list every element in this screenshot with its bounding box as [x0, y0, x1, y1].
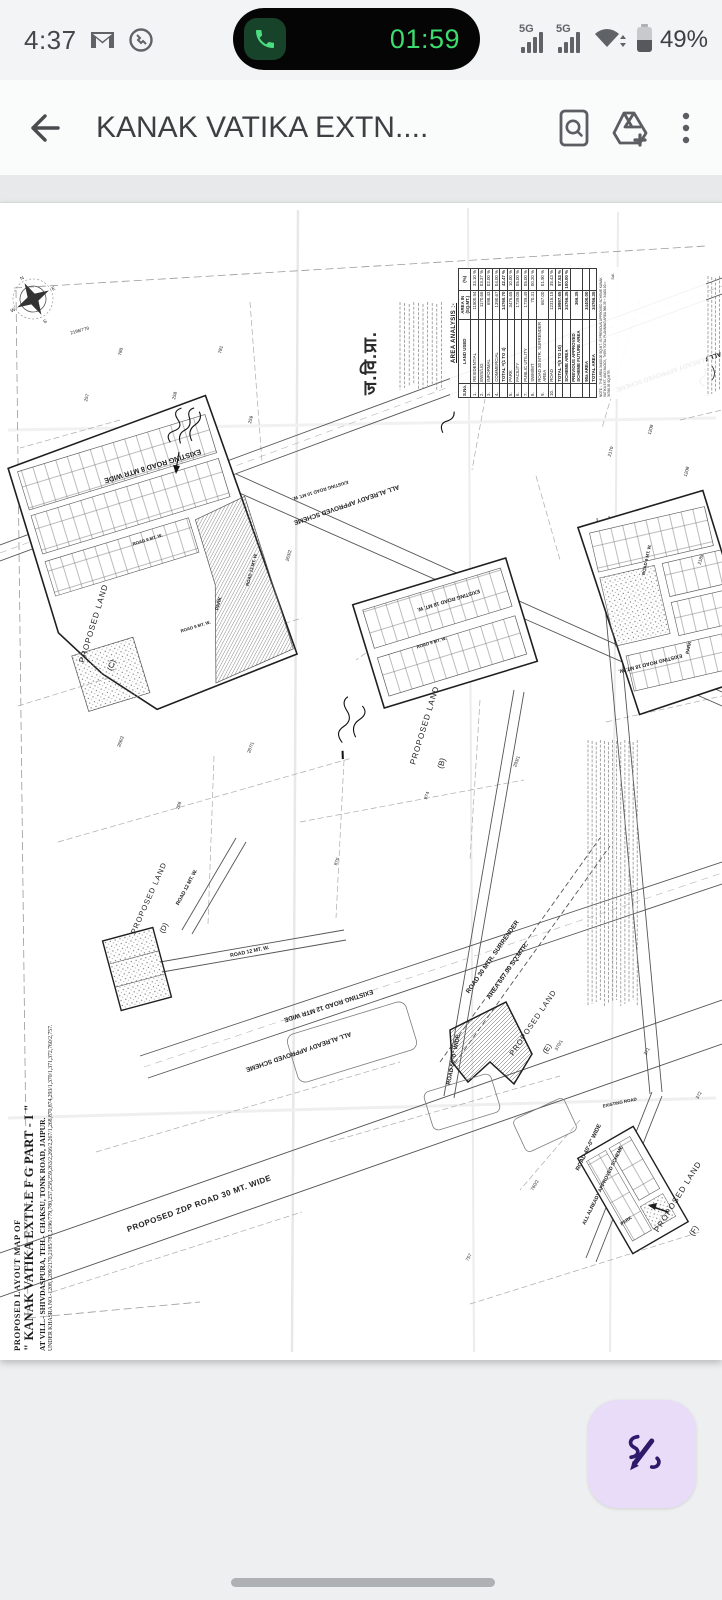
khasra-number: 266/2: [116, 735, 125, 748]
area-table-row: 10.ROAD12315.1535.43 %: [548, 269, 555, 398]
khasra-number: 268: [175, 801, 182, 810]
add-to-drive-icon: [607, 105, 653, 151]
map-label: PROPOSED ZDP ROAD 30 MT. WIDE: [126, 1173, 273, 1234]
khasra-number: 263/2: [285, 549, 293, 562]
area-table-header: S.No.: [459, 383, 471, 397]
area-table-row: 90a AREA34400.00: [582, 269, 589, 398]
area-table-row: 3.INFORMAL698.4302.00 %: [485, 269, 492, 398]
authority-stamp: ज.वि.प्रा.: [358, 299, 394, 395]
compass-s: S: [42, 318, 48, 325]
khasra-number: 2170: [607, 446, 615, 458]
gmail-notification-icon: [89, 28, 116, 52]
area-table-row: SCHEME AREA34766.35100.00 %: [563, 269, 570, 398]
back-arrow-icon: [20, 106, 64, 150]
title-block-line3: AT VILL.- SHIVDASPURA, TEH.- CHAKSU, TON…: [38, 1015, 47, 1351]
khasra-number: 371: [643, 1046, 651, 1056]
annotate-fab[interactable]: [588, 1400, 696, 1508]
area-table-row: 2.EWS/LIG1170.6603.37 %: [478, 269, 485, 398]
parcel-a: [576, 487, 722, 718]
map-label: EXISTING ROAD: [602, 1096, 637, 1108]
khasra-number: 370/1: [554, 1039, 564, 1052]
area-table-row: PREVIOUS APPROVED SCHEME FUTURE AREA366.…: [570, 269, 582, 398]
area-table-header: LAND USED: [459, 319, 471, 383]
area-analysis-table: S.No.LAND USEDAREA IN (SQ.MT.)(%)1.RESID…: [458, 268, 597, 398]
status-icons: 5G 5G 49%: [519, 0, 708, 80]
area-table-row: 8.SWM/MT70.3100.20 %: [529, 269, 536, 398]
find-in-document-button[interactable]: [546, 100, 602, 156]
compass-rose: N S E W: [0, 264, 69, 336]
scribble-pen-icon: [616, 1428, 668, 1480]
compass-e: E: [51, 285, 57, 292]
title-block-line1: PROPOSED LAYOUT MAP OF: [12, 1015, 22, 1351]
area-table-row: TOTAL =(5 TO 10)19997.6557.53 %: [556, 269, 563, 398]
map-label: ROAD 12 MT. W.: [175, 868, 199, 906]
khasra-number: 258: [171, 391, 178, 400]
area-table-header: (%): [459, 269, 471, 291]
area-table-row: 1.RESIDENTIAL11500.9433.10 %: [471, 269, 478, 398]
parcel-b: [353, 558, 538, 708]
add-to-drive-button[interactable]: [602, 100, 658, 156]
khasra-number: 257: [83, 393, 90, 402]
more-options-button[interactable]: [658, 100, 714, 156]
call-timer: 01:59: [390, 24, 460, 55]
more-options-icon: [664, 106, 708, 150]
area-table-title: AREA ANALYSIS :-: [450, 267, 458, 399]
map-label: ALL ALREADY APPROVED SCHEME: [244, 1030, 352, 1073]
compass-n: N: [19, 275, 25, 282]
map-label: (B): [436, 757, 448, 770]
khasra-number: 293/1: [512, 755, 521, 768]
map-label: ALL ALREADY APPROVED SCHEME: [292, 483, 400, 526]
document-title: KANAK VATIKA EXTN....: [96, 111, 428, 145]
khasra-number: 2196/779: [70, 326, 90, 336]
area-table-row: TOTAL AREA34766.35: [590, 269, 597, 398]
screen: { "status_bar": { "time": "4:37", "icons…: [0, 0, 722, 1600]
authority-stamp-region: ज.वि.प्रा.: [358, 299, 394, 395]
status-bar: 4:37 01:59 5G 5G 49%: [0, 0, 722, 80]
khasra-number: 780: [117, 347, 124, 356]
khasra-number: 267/1: [246, 741, 255, 754]
area-analysis-table-region: AREA ANALYSIS :- S.No.LAND USEDAREA IN (…: [450, 267, 706, 399]
area-table-row: 7.PUBLIC UTILITY1739.4905.00 %: [522, 269, 529, 398]
area-table-row: TOTAL =(1 TO 4)14760.7042.47 %: [500, 269, 507, 398]
area-table-signature: Sd/-: [611, 267, 615, 399]
parcel-d: [103, 927, 172, 1010]
khasra-number: 757: [465, 1252, 473, 1262]
battery-icon: [636, 23, 653, 58]
document-page[interactable]: N S E W: [0, 203, 722, 1360]
signal-5g-icon-2: 5G: [556, 25, 586, 55]
area-table-row: 9.ROAD 30 MTR. SURRENDER AREA657.0001.90…: [536, 269, 548, 398]
area-table-note: NOTE :- THE AREA 34400.00 SQ.MT. IS PREV…: [597, 269, 611, 399]
khasra-number: 259: [247, 415, 254, 424]
battery-percent: 49%: [660, 26, 708, 54]
back-button[interactable]: [14, 100, 70, 156]
app-bar: KANAK VATIKA EXTN....: [0, 80, 722, 175]
map-label: (E): [540, 1042, 553, 1056]
page-gap-band: [0, 175, 722, 203]
gesture-handle[interactable]: [231, 1578, 495, 1587]
khasra-number: 1209: [647, 424, 655, 436]
map-label: EXISTING ROAD 10 MT. W.: [292, 480, 349, 502]
map-label: (D): [157, 921, 170, 935]
area-table-row: 5.PARK3476.6510.00 %: [507, 269, 514, 398]
ongoing-call-pill[interactable]: 01:59: [233, 8, 480, 70]
parcel-f: [578, 1126, 688, 1253]
signal-5g-icon-1: 5G: [519, 25, 549, 55]
khasra-number: 874: [423, 791, 430, 800]
area-table-header: AREA IN (SQ.MT.): [459, 290, 471, 319]
find-in-document-icon: [552, 106, 596, 150]
khasra-number: 760/2: [530, 1179, 540, 1192]
clock-time: 4:37: [24, 25, 77, 56]
khasra-number: 870: [333, 857, 340, 866]
call-phone-icon: [244, 18, 286, 60]
title-block-line4: UNDER KHASRA NO.-1208,1209/2170,2185/781…: [48, 1015, 54, 1351]
khasra-number: 781: [217, 345, 224, 354]
title-block-line2: " KANAK VATIKA EXTN.E F G PART - I ": [22, 1015, 37, 1351]
wifi-icon: [593, 23, 629, 58]
area-table-row: 6.FACILITY1739.0505.00 %: [514, 269, 521, 398]
khasra-number: 1208: [683, 466, 691, 478]
map-title-block: PROPOSED LAYOUT MAP OF " KANAK VATIKA EX…: [12, 1015, 78, 1351]
phone-notification-icon: [128, 27, 154, 53]
area-table-row: 4.COMMERCIAL1390.6704.00 %: [493, 269, 500, 398]
